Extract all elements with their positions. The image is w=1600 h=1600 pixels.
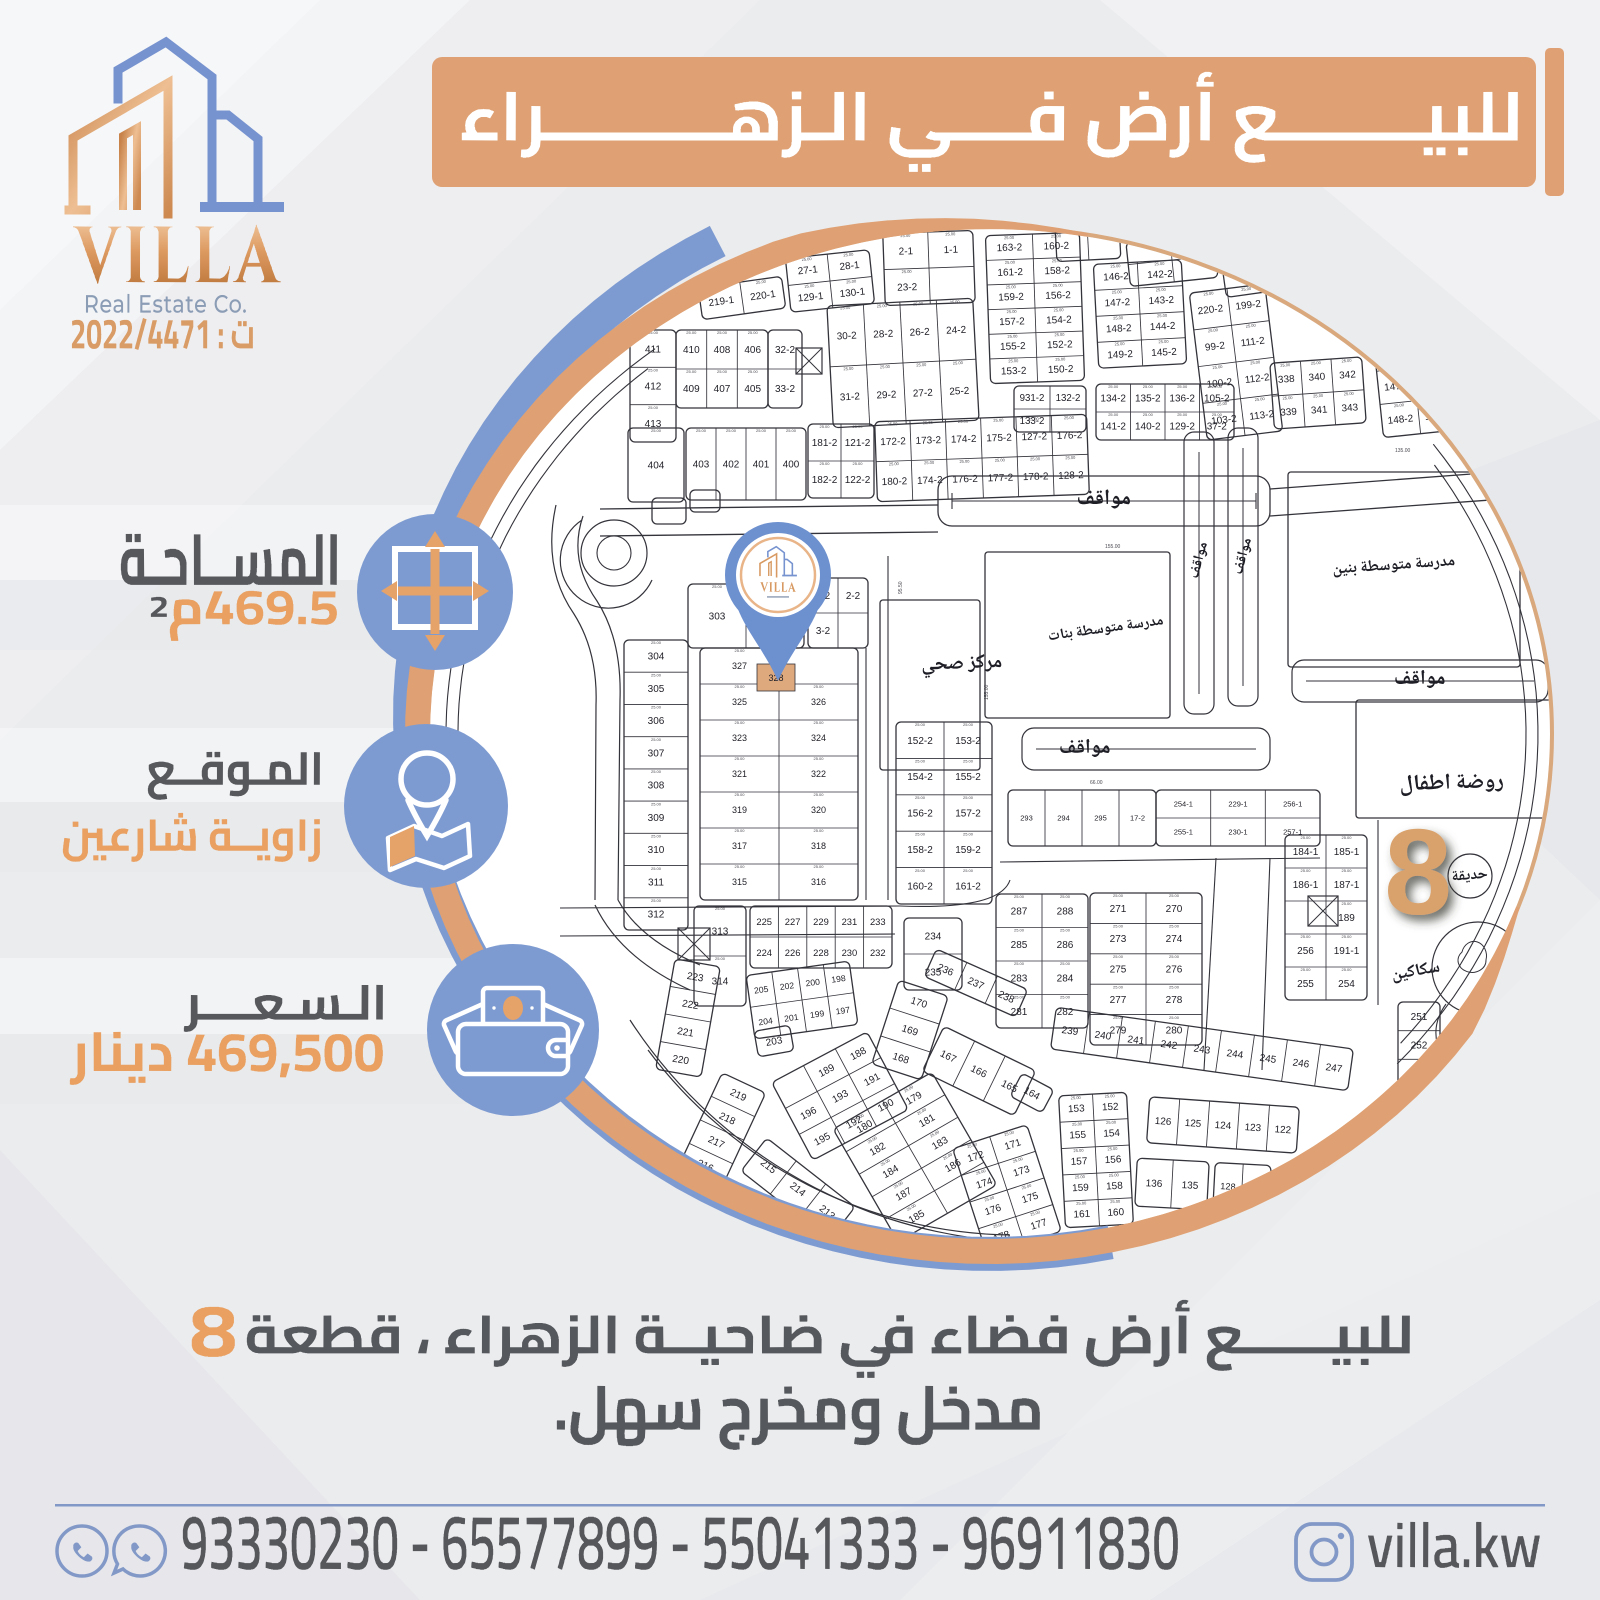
svg-text:126: 126 bbox=[1154, 1116, 1172, 1128]
svg-text:255: 255 bbox=[1297, 979, 1314, 990]
svg-text:25.00: 25.00 bbox=[1060, 961, 1071, 966]
svg-text:286: 286 bbox=[1057, 940, 1074, 951]
svg-text:244: 244 bbox=[1226, 1048, 1244, 1061]
svg-text:25.00: 25.00 bbox=[1051, 233, 1062, 238]
svg-text:23-2: 23-2 bbox=[897, 282, 918, 294]
svg-text:25.00: 25.00 bbox=[734, 864, 745, 869]
svg-text:148-2: 148-2 bbox=[1106, 323, 1133, 335]
svg-text:199: 199 bbox=[809, 1008, 825, 1020]
svg-text:129-2: 129-2 bbox=[1169, 422, 1195, 433]
svg-text:25.00: 25.00 bbox=[1060, 928, 1071, 933]
svg-text:25.00: 25.00 bbox=[1112, 289, 1123, 295]
svg-text:25.00: 25.00 bbox=[852, 424, 863, 429]
svg-text:25.00: 25.00 bbox=[1341, 358, 1352, 364]
svg-text:25.00: 25.00 bbox=[1110, 1199, 1121, 1205]
svg-text:156-2: 156-2 bbox=[1045, 290, 1071, 302]
svg-text:341: 341 bbox=[1311, 404, 1329, 416]
svg-text:303: 303 bbox=[709, 612, 726, 623]
svg-text:246: 246 bbox=[1292, 1057, 1310, 1070]
svg-text:28-2: 28-2 bbox=[873, 329, 894, 341]
svg-text:338: 338 bbox=[1278, 374, 1296, 386]
svg-text:189: 189 bbox=[1338, 913, 1355, 924]
svg-text:240: 240 bbox=[1094, 1030, 1112, 1043]
svg-text:152-2: 152-2 bbox=[1047, 339, 1073, 351]
svg-text:313: 313 bbox=[712, 927, 729, 938]
svg-text:25.00: 25.00 bbox=[1065, 455, 1076, 460]
svg-text:28-1: 28-1 bbox=[839, 260, 860, 273]
svg-text:25.00: 25.00 bbox=[813, 756, 824, 761]
svg-text:25.00: 25.00 bbox=[1114, 341, 1125, 347]
svg-text:278: 278 bbox=[1166, 995, 1183, 1006]
svg-text:136-2: 136-2 bbox=[1169, 394, 1195, 405]
svg-text:152: 152 bbox=[1102, 1102, 1120, 1114]
svg-text:25.00: 25.00 bbox=[756, 428, 767, 433]
svg-text:321: 321 bbox=[732, 769, 747, 779]
svg-text:25.00: 25.00 bbox=[915, 868, 926, 873]
svg-text:105-2: 105-2 bbox=[1204, 394, 1230, 405]
svg-text:142-2: 142-2 bbox=[1147, 269, 1174, 281]
svg-text:294: 294 bbox=[1057, 814, 1070, 823]
svg-text:25.00: 25.00 bbox=[963, 722, 974, 727]
svg-text:326: 326 bbox=[811, 697, 826, 707]
svg-text:27-1: 27-1 bbox=[797, 264, 818, 277]
svg-text:25.00: 25.00 bbox=[712, 584, 723, 589]
svg-text:25.00: 25.00 bbox=[715, 906, 726, 911]
svg-text:155-2: 155-2 bbox=[955, 772, 981, 783]
svg-text:158-2: 158-2 bbox=[907, 845, 933, 856]
svg-text:25.00: 25.00 bbox=[843, 366, 854, 372]
svg-text:274: 274 bbox=[1166, 934, 1183, 945]
svg-text:242: 242 bbox=[1160, 1039, 1178, 1052]
svg-text:25.00: 25.00 bbox=[915, 722, 926, 727]
svg-text:181-2: 181-2 bbox=[812, 438, 838, 449]
svg-text:251: 251 bbox=[1411, 1012, 1428, 1023]
svg-text:25.00: 25.00 bbox=[651, 769, 662, 774]
svg-text:25.00: 25.00 bbox=[963, 831, 974, 836]
svg-text:25.00: 25.00 bbox=[1075, 1174, 1086, 1180]
svg-text:279: 279 bbox=[1110, 1025, 1127, 1036]
svg-text:25.00: 25.00 bbox=[953, 360, 964, 366]
svg-text:319: 319 bbox=[732, 805, 747, 815]
svg-text:25.00: 25.00 bbox=[1064, 415, 1075, 420]
svg-text:150-2: 150-2 bbox=[1048, 364, 1074, 376]
svg-text:314: 314 bbox=[712, 977, 729, 988]
svg-text:295: 295 bbox=[1094, 814, 1107, 823]
svg-text:198: 198 bbox=[831, 973, 847, 985]
svg-text:25.00: 25.00 bbox=[1341, 868, 1352, 873]
svg-text:186-1: 186-1 bbox=[1293, 880, 1319, 891]
svg-text:25.00: 25.00 bbox=[1107, 1146, 1118, 1152]
svg-text:197: 197 bbox=[835, 1005, 851, 1017]
svg-text:153-2: 153-2 bbox=[1001, 366, 1027, 378]
svg-text:152-2: 152-2 bbox=[907, 736, 933, 747]
svg-text:232: 232 bbox=[870, 947, 886, 958]
svg-text:155-2: 155-2 bbox=[1000, 341, 1026, 353]
svg-text:25.00: 25.00 bbox=[1169, 893, 1180, 898]
svg-text:122-2: 122-2 bbox=[845, 475, 871, 486]
svg-text:25.00: 25.00 bbox=[1143, 384, 1154, 389]
svg-text:309: 309 bbox=[648, 813, 665, 824]
svg-text:25.00: 25.00 bbox=[651, 801, 662, 806]
svg-text:317: 317 bbox=[732, 841, 747, 851]
svg-text:134-2: 134-2 bbox=[1100, 394, 1126, 405]
svg-text:25.00: 25.00 bbox=[923, 420, 934, 425]
svg-text:402: 402 bbox=[723, 460, 739, 471]
svg-text:25.00: 25.00 bbox=[840, 305, 851, 311]
svg-text:25.00: 25.00 bbox=[1282, 395, 1293, 401]
svg-text:25.00: 25.00 bbox=[813, 864, 824, 869]
svg-text:25.00: 25.00 bbox=[734, 792, 745, 797]
svg-text:25.00: 25.00 bbox=[651, 737, 662, 742]
svg-text:254: 254 bbox=[1338, 979, 1355, 990]
svg-text:154-2: 154-2 bbox=[907, 772, 933, 783]
svg-text:243: 243 bbox=[1193, 1043, 1211, 1056]
svg-text:400: 400 bbox=[783, 460, 800, 471]
svg-text:205: 205 bbox=[753, 984, 769, 996]
svg-text:25.00: 25.00 bbox=[686, 369, 697, 374]
svg-text:25.00: 25.00 bbox=[1154, 261, 1165, 267]
svg-text:285: 285 bbox=[1011, 940, 1028, 951]
svg-text:408: 408 bbox=[714, 345, 731, 356]
svg-text:284: 284 bbox=[1057, 973, 1074, 984]
svg-text:310: 310 bbox=[648, 845, 665, 856]
svg-text:25.00: 25.00 bbox=[945, 231, 956, 236]
svg-text:202: 202 bbox=[779, 980, 795, 992]
svg-text:229: 229 bbox=[813, 916, 829, 927]
svg-text:25.00: 25.00 bbox=[819, 461, 830, 466]
svg-text:25.00: 25.00 bbox=[1007, 309, 1018, 314]
svg-text:161: 161 bbox=[1073, 1209, 1091, 1221]
svg-text:156-2: 156-2 bbox=[907, 809, 933, 820]
svg-text:25.00: 25.00 bbox=[1311, 360, 1322, 366]
svg-text:403: 403 bbox=[693, 460, 710, 471]
svg-text:25.00: 25.00 bbox=[1341, 901, 1352, 906]
svg-text:25.00: 25.00 bbox=[877, 303, 888, 309]
svg-text:25.00: 25.00 bbox=[1014, 894, 1025, 899]
svg-text:144-2: 144-2 bbox=[1150, 321, 1177, 333]
svg-text:25.00: 25.00 bbox=[686, 330, 697, 335]
svg-text:25.00: 25.00 bbox=[1300, 967, 1311, 972]
svg-text:25.00: 25.00 bbox=[913, 301, 924, 307]
svg-text:159-2: 159-2 bbox=[998, 292, 1024, 304]
svg-text:241: 241 bbox=[1127, 1034, 1145, 1047]
svg-text:25.00: 25.00 bbox=[1108, 384, 1119, 389]
svg-text:25.00: 25.00 bbox=[651, 705, 662, 710]
svg-text:25.00: 25.00 bbox=[648, 405, 659, 410]
svg-text:318: 318 bbox=[811, 841, 826, 851]
svg-text:311: 311 bbox=[648, 877, 664, 888]
svg-text:25.00: 25.00 bbox=[916, 362, 927, 368]
svg-text:25.00: 25.00 bbox=[1113, 924, 1124, 929]
svg-text:161-2: 161-2 bbox=[997, 267, 1023, 279]
svg-text:308: 308 bbox=[648, 781, 665, 792]
svg-text:239: 239 bbox=[1061, 1025, 1079, 1038]
svg-text:204: 204 bbox=[758, 1015, 774, 1027]
svg-text:157: 157 bbox=[1070, 1156, 1088, 1168]
svg-text:25.00: 25.00 bbox=[1300, 934, 1311, 939]
svg-text:160-2: 160-2 bbox=[907, 881, 933, 892]
svg-text:33-2: 33-2 bbox=[775, 384, 795, 395]
svg-text:25.00: 25.00 bbox=[1113, 984, 1124, 989]
svg-text:25.00: 25.00 bbox=[748, 369, 759, 374]
svg-text:123: 123 bbox=[1244, 1122, 1262, 1134]
svg-text:25.00: 25.00 bbox=[1054, 332, 1065, 337]
svg-text:25.00: 25.00 bbox=[651, 898, 662, 903]
svg-text:25.00: 25.00 bbox=[852, 461, 863, 466]
svg-text:412: 412 bbox=[645, 382, 662, 393]
svg-text:25.00: 25.00 bbox=[1158, 339, 1169, 345]
svg-text:316: 316 bbox=[811, 877, 826, 887]
svg-text:224: 224 bbox=[756, 947, 772, 958]
svg-text:159: 159 bbox=[1072, 1182, 1090, 1194]
svg-text:25.00: 25.00 bbox=[902, 269, 913, 274]
svg-text:1-1: 1-1 bbox=[943, 245, 958, 257]
svg-text:25.00: 25.00 bbox=[1060, 995, 1071, 1000]
svg-text:25.00: 25.00 bbox=[651, 866, 662, 871]
svg-text:25.00: 25.00 bbox=[1169, 954, 1180, 959]
svg-text:277: 277 bbox=[1110, 995, 1127, 1006]
svg-text:2-2: 2-2 bbox=[846, 591, 860, 602]
svg-text:175-2: 175-2 bbox=[986, 433, 1012, 445]
svg-text:407: 407 bbox=[714, 384, 731, 395]
svg-text:276: 276 bbox=[1166, 965, 1183, 976]
svg-text:25.00: 25.00 bbox=[1005, 260, 1016, 265]
svg-text:155.00: 155.00 bbox=[1105, 544, 1121, 550]
svg-text:25.00: 25.00 bbox=[1212, 412, 1223, 417]
svg-text:154: 154 bbox=[1103, 1128, 1121, 1140]
svg-text:135: 135 bbox=[1181, 1180, 1199, 1192]
svg-text:25.00: 25.00 bbox=[889, 461, 900, 466]
svg-text:3-2: 3-2 bbox=[816, 626, 830, 637]
svg-text:125: 125 bbox=[1184, 1118, 1202, 1130]
svg-text:147-2: 147-2 bbox=[1104, 297, 1131, 309]
svg-text:404: 404 bbox=[648, 461, 665, 472]
svg-text:273: 273 bbox=[1110, 934, 1127, 945]
svg-text:931-2: 931-2 bbox=[1020, 393, 1045, 404]
svg-text:231: 231 bbox=[842, 916, 858, 927]
svg-text:25.00: 25.00 bbox=[1341, 934, 1352, 939]
svg-text:25.00: 25.00 bbox=[1169, 924, 1180, 929]
svg-text:66.00: 66.00 bbox=[1090, 780, 1103, 786]
svg-text:25.00: 25.00 bbox=[696, 428, 707, 433]
svg-text:327: 327 bbox=[732, 661, 747, 671]
svg-text:127-2: 127-2 bbox=[1021, 431, 1047, 443]
svg-text:256-1: 256-1 bbox=[1283, 800, 1302, 809]
svg-text:25.00: 25.00 bbox=[1341, 967, 1352, 972]
svg-text:25.00: 25.00 bbox=[1071, 1095, 1082, 1101]
svg-text:25.00: 25.00 bbox=[1177, 412, 1188, 417]
svg-text:25.00: 25.00 bbox=[734, 648, 745, 653]
svg-text:25.00: 25.00 bbox=[726, 428, 737, 433]
svg-text:25.00: 25.00 bbox=[1344, 391, 1355, 397]
svg-text:283: 283 bbox=[1011, 973, 1028, 984]
svg-text:25.00: 25.00 bbox=[1169, 1015, 1180, 1020]
svg-text:287: 287 bbox=[1011, 906, 1028, 917]
svg-text:145-2: 145-2 bbox=[1151, 347, 1178, 359]
svg-text:160-2: 160-2 bbox=[1043, 241, 1069, 253]
svg-text:320: 320 bbox=[811, 805, 826, 815]
svg-text:234: 234 bbox=[925, 932, 942, 943]
svg-text:160: 160 bbox=[1107, 1207, 1125, 1219]
svg-text:233: 233 bbox=[870, 916, 886, 927]
svg-text:325: 325 bbox=[732, 697, 747, 707]
svg-text:281: 281 bbox=[1011, 1007, 1028, 1018]
svg-text:154-2: 154-2 bbox=[1046, 315, 1072, 327]
svg-text:25.00: 25.00 bbox=[1300, 868, 1311, 873]
svg-text:25.00: 25.00 bbox=[813, 828, 824, 833]
svg-text:228: 228 bbox=[813, 947, 829, 958]
svg-text:25.00: 25.00 bbox=[1108, 412, 1119, 417]
svg-text:25.00: 25.00 bbox=[813, 720, 824, 725]
svg-text:25.00: 25.00 bbox=[717, 369, 728, 374]
svg-text:95.50: 95.50 bbox=[898, 581, 904, 594]
svg-text:25.00: 25.00 bbox=[786, 428, 797, 433]
svg-text:25.00: 25.00 bbox=[1072, 1121, 1083, 1127]
svg-text:25.00: 25.00 bbox=[1143, 412, 1154, 417]
svg-text:25.00: 25.00 bbox=[1109, 1172, 1120, 1178]
svg-text:25.00: 25.00 bbox=[880, 364, 891, 370]
svg-text:157-2: 157-2 bbox=[955, 809, 981, 820]
svg-text:410: 410 bbox=[683, 345, 700, 356]
svg-text:25.00: 25.00 bbox=[1300, 835, 1311, 840]
svg-text:25.00: 25.00 bbox=[1341, 835, 1352, 840]
svg-text:401: 401 bbox=[753, 460, 770, 471]
svg-text:180-2: 180-2 bbox=[882, 476, 908, 488]
svg-text:25.00: 25.00 bbox=[1156, 287, 1167, 293]
svg-text:226: 226 bbox=[785, 947, 801, 958]
svg-text:121-2: 121-2 bbox=[845, 438, 871, 449]
svg-text:25.00: 25.00 bbox=[1014, 928, 1025, 933]
svg-text:124: 124 bbox=[1214, 1120, 1232, 1132]
svg-text:31-2: 31-2 bbox=[840, 391, 861, 403]
svg-text:187-1: 187-1 bbox=[1334, 880, 1360, 891]
svg-text:255-1: 255-1 bbox=[1174, 828, 1193, 837]
svg-text:245: 245 bbox=[1259, 1053, 1277, 1066]
svg-text:293: 293 bbox=[1020, 814, 1033, 823]
svg-text:143-2: 143-2 bbox=[1148, 295, 1175, 307]
svg-text:191-1: 191-1 bbox=[1334, 946, 1360, 957]
svg-text:25.00: 25.00 bbox=[813, 792, 824, 797]
svg-text:25.00: 25.00 bbox=[963, 759, 974, 764]
svg-text:25.00: 25.00 bbox=[1113, 893, 1124, 898]
svg-text:25.00: 25.00 bbox=[963, 868, 974, 873]
svg-text:25.00: 25.00 bbox=[651, 672, 662, 677]
svg-text:25-2: 25-2 bbox=[949, 386, 970, 398]
svg-text:178-2: 178-2 bbox=[1023, 471, 1049, 483]
svg-text:140-2: 140-2 bbox=[1135, 422, 1161, 433]
svg-text:200: 200 bbox=[805, 976, 821, 988]
svg-text:271: 271 bbox=[1110, 904, 1127, 915]
svg-text:37-2: 37-2 bbox=[1207, 422, 1227, 433]
svg-text:322: 322 bbox=[811, 769, 826, 779]
svg-text:158: 158 bbox=[1106, 1181, 1124, 1193]
svg-text:25.00: 25.00 bbox=[1073, 1148, 1084, 1154]
svg-text:25.00: 25.00 bbox=[1313, 393, 1324, 399]
svg-text:256: 256 bbox=[1297, 946, 1314, 957]
svg-text:25.00: 25.00 bbox=[813, 684, 824, 689]
svg-text:177-2: 177-2 bbox=[987, 473, 1013, 485]
svg-text:172-2: 172-2 bbox=[880, 436, 906, 448]
svg-text:25.00: 25.00 bbox=[1014, 995, 1025, 1000]
svg-text:280: 280 bbox=[1166, 1025, 1183, 1036]
svg-text:32-2: 32-2 bbox=[775, 345, 795, 356]
svg-text:25.00: 25.00 bbox=[1076, 1200, 1087, 1206]
svg-text:270: 270 bbox=[1166, 904, 1183, 915]
svg-text:252: 252 bbox=[1411, 1041, 1428, 1052]
svg-text:159-2: 159-2 bbox=[955, 845, 981, 856]
svg-text:307: 307 bbox=[648, 748, 665, 759]
svg-text:306: 306 bbox=[648, 716, 665, 727]
svg-text:25.00: 25.00 bbox=[1105, 1093, 1116, 1099]
svg-text:323: 323 bbox=[732, 733, 747, 743]
svg-text:173-2: 173-2 bbox=[915, 435, 941, 447]
svg-text:25.00: 25.00 bbox=[1053, 282, 1064, 287]
svg-text:25.00: 25.00 bbox=[715, 956, 726, 961]
svg-text:182-2: 182-2 bbox=[812, 475, 838, 486]
svg-text:132-2: 132-2 bbox=[1056, 393, 1081, 404]
svg-text:25.00: 25.00 bbox=[958, 419, 969, 424]
svg-text:141-2: 141-2 bbox=[1100, 422, 1126, 433]
svg-text:25.00: 25.00 bbox=[993, 417, 1004, 422]
svg-text:136: 136 bbox=[1145, 1178, 1163, 1190]
svg-text:254-1: 254-1 bbox=[1174, 800, 1193, 809]
svg-text:247: 247 bbox=[1325, 1062, 1343, 1075]
svg-text:153: 153 bbox=[1068, 1103, 1086, 1115]
svg-text:2-1: 2-1 bbox=[899, 246, 914, 258]
svg-text:25.00: 25.00 bbox=[924, 460, 935, 465]
svg-text:122: 122 bbox=[1274, 1124, 1291, 1136]
svg-text:25.00: 25.00 bbox=[651, 834, 662, 839]
svg-text:304: 304 bbox=[648, 652, 665, 663]
svg-text:163-2: 163-2 bbox=[996, 242, 1022, 254]
svg-text:25.00: 25.00 bbox=[1106, 1119, 1117, 1125]
svg-text:25.00: 25.00 bbox=[648, 368, 659, 373]
svg-text:315: 315 bbox=[732, 877, 747, 887]
svg-text:25.00: 25.00 bbox=[1113, 315, 1124, 321]
svg-text:25.00: 25.00 bbox=[1169, 984, 1180, 989]
svg-text:25.00: 25.00 bbox=[1006, 284, 1017, 289]
svg-text:161-2: 161-2 bbox=[955, 881, 981, 892]
svg-text:17-2: 17-2 bbox=[1130, 814, 1145, 823]
svg-text:343: 343 bbox=[1341, 402, 1359, 414]
svg-text:25.00: 25.00 bbox=[915, 759, 926, 764]
svg-text:25.00: 25.00 bbox=[1177, 384, 1188, 389]
svg-text:133-2: 133-2 bbox=[1020, 416, 1045, 427]
svg-text:156: 156 bbox=[1104, 1154, 1122, 1166]
svg-text:25.00: 25.00 bbox=[1053, 307, 1064, 312]
svg-text:185-1: 185-1 bbox=[1334, 847, 1360, 858]
svg-text:405: 405 bbox=[744, 384, 761, 395]
svg-text:27-2: 27-2 bbox=[913, 388, 934, 400]
svg-text:25.00: 25.00 bbox=[1007, 334, 1018, 339]
svg-text:155.00: 155.00 bbox=[984, 684, 990, 700]
svg-text:25.00: 25.00 bbox=[734, 720, 745, 725]
svg-text:174-2: 174-2 bbox=[951, 434, 977, 446]
svg-text:157-2: 157-2 bbox=[999, 316, 1025, 328]
svg-text:25.00: 25.00 bbox=[651, 428, 662, 433]
svg-text:230-1: 230-1 bbox=[1228, 828, 1247, 837]
svg-text:135-2: 135-2 bbox=[1135, 394, 1161, 405]
svg-text:25.00: 25.00 bbox=[734, 756, 745, 761]
svg-text:230: 230 bbox=[842, 947, 858, 958]
svg-text:340: 340 bbox=[1308, 372, 1326, 384]
svg-text:149-2: 149-2 bbox=[1107, 349, 1134, 361]
svg-text:25.00: 25.00 bbox=[950, 299, 961, 305]
svg-text:135.00: 135.00 bbox=[1395, 448, 1411, 454]
svg-text:158-2: 158-2 bbox=[1044, 265, 1070, 277]
svg-text:305: 305 bbox=[648, 684, 665, 695]
svg-text:24-2: 24-2 bbox=[946, 325, 967, 337]
